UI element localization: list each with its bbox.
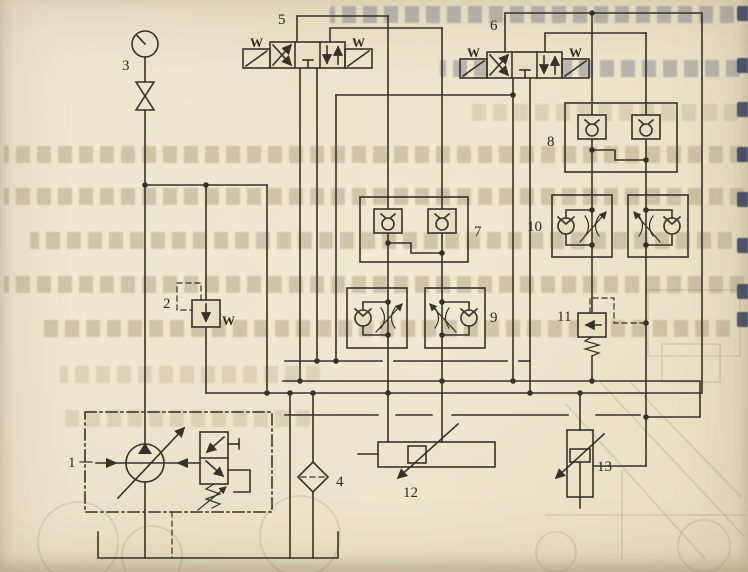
pilot-cross-line [592,150,646,160]
scanned-page: 1 2 3 4 5 6 7 8 9 10 11 12 13 W W W W W [0,0,748,572]
spring-icon [206,484,220,508]
check-valve-icon [436,218,448,230]
label-pump-1: 1 [68,455,76,471]
one-way-throttle-block-10 [552,195,688,257]
hydraulic-circuit-diagram: 1 2 3 4 5 6 7 8 9 10 11 12 13 W W W W W [0,0,748,572]
check-valve-icon [664,218,680,234]
label-gauge-3: 3 [122,58,130,74]
label-throttles-10: 10 [527,219,542,235]
spring-w-valve6-right: W [569,45,582,60]
spring-w-valve5-left: W [250,35,263,50]
label-cylinder-13: 13 [597,459,612,475]
sequence-valve-11 [578,298,649,381]
cylinder-12 [358,424,495,478]
variable-arrow-icon [398,424,458,478]
left-piping [145,185,702,558]
spring-w-valve6-left: W [467,45,480,60]
label-filter-4: 4 [336,474,344,490]
tank-symbol [98,532,338,558]
label-cylinder-12: 12 [403,485,418,501]
spring-w-relief-2: W [222,313,235,328]
label-throttles-9: 9 [490,310,498,326]
check-valve-icon [640,124,652,136]
check-valve-icon [461,310,477,326]
pilot-check-block-8 [565,103,677,172]
pilot-check-block-7 [360,197,468,262]
pilot-cross-line [388,243,442,253]
ghost-machine-drawing [38,290,745,572]
spring-icon [585,337,599,356]
spring-w-valve5-right: W [352,35,365,50]
label-relief-2: 2 [163,296,171,312]
check-valve-icon [586,124,598,136]
label-valve-5: 5 [278,12,286,28]
check-valve-icon [355,310,371,326]
relief-valve-2 [177,283,220,327]
cylinder-13 [556,393,646,508]
shutoff-valve-icon [136,82,154,96]
one-way-throttle-block-9 [347,288,485,348]
pump-unit-1 [80,412,272,558]
label-sequence-11: 11 [557,309,571,325]
directional-valve-5 [243,16,442,381]
work-lines [388,16,646,466]
check-valve-icon [382,218,394,230]
filter-4 [298,393,328,558]
check-valve-icon [558,218,574,234]
label-valve-6: 6 [490,18,498,34]
pressure-gauge-3 [132,31,158,185]
label-lock-8: 8 [547,134,555,150]
label-lock-7: 7 [474,224,482,240]
